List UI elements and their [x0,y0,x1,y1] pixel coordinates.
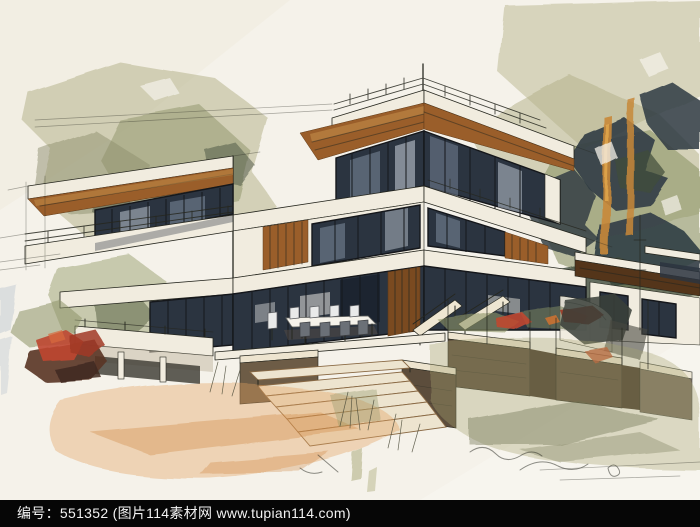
watercolor-villa-illustration [0,0,700,500]
wood-slat-door [388,267,420,336]
wood-louver-left [263,220,308,270]
footer-watermark-text: 编号：551352 (图片114素材网 www.tupian114.com) [0,500,351,527]
stock-image-preview: 编号：551352 (图片114素材网 www.tupian114.com) [0,0,700,527]
footer-bar: 编号：551352 (图片114素材网 www.tupian114.com) [0,500,700,527]
